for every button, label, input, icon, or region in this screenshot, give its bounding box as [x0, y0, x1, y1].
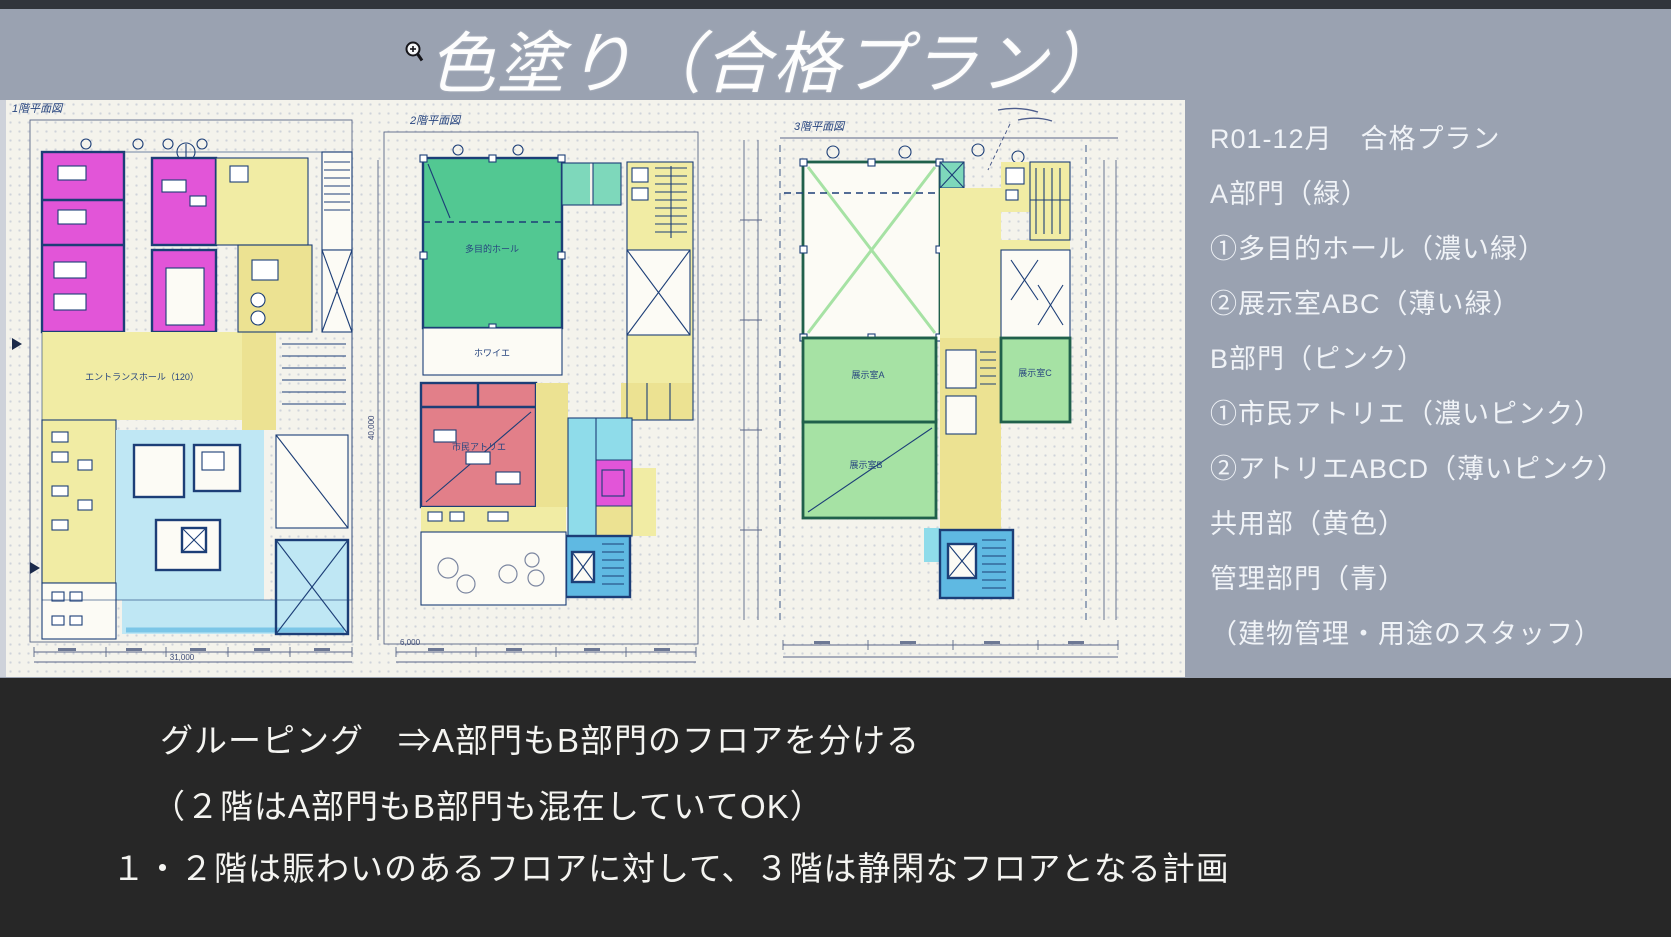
- legend-common: 共用部（黄色）: [1210, 509, 1660, 564]
- floor-plan-1f: 1階平面図 31,000: [6, 100, 366, 677]
- legend-dept-b-atelier: ①市民アトリエ（濃いピンク）: [1210, 399, 1660, 454]
- legend-dept-b-ateliers: ②アトリエABCD（薄いピンク）: [1210, 454, 1660, 509]
- plan2-atelier-red: 市民アトリエ: [421, 383, 536, 507]
- notes-band: グルーピング ⇒A部門もB部門のフロアを分ける （２階はA部門もB部門も混在して…: [0, 678, 1671, 937]
- plan3-room-b-label: 展示室B: [849, 459, 882, 470]
- legend: R01-12月 合格プラン A部門（緑） ①多目的ホール（濃い緑） ②展示室AB…: [1210, 124, 1660, 674]
- plan2-hall-dark-green: 多目的ホール: [420, 155, 621, 331]
- legend-dept-b: B部門（ピンク）: [1210, 344, 1660, 399]
- floor-plan-3f: 3階平面図: [718, 100, 1185, 677]
- floor-plans-image: 1階平面図 31,000: [6, 100, 1185, 677]
- plan1-atelier-rooms-pink: [42, 152, 216, 332]
- plan1-dim-total: 31,000: [170, 653, 195, 662]
- page-title: 色塗り（合格プラン）: [428, 10, 1118, 107]
- plan1-title: 1階平面図: [12, 102, 64, 115]
- plan2-hall-label: 多目的ホール: [465, 243, 519, 254]
- note-floor-plan: １・２階は賑わいのあるフロアに対して、３階は静閑なフロアとなる計画: [112, 842, 1230, 890]
- plan3-exhibition-rooms-green: 展示室A 展示室B 展示室C: [803, 338, 1070, 518]
- plan2-foyer-label: ホワイエ: [474, 348, 510, 358]
- legend-plan-name: R01-12月 合格プラン: [1210, 124, 1660, 179]
- zoom-cursor-icon: [404, 40, 426, 64]
- floor-plan-2f: 2階平面図 40,000 6,000: [366, 100, 716, 677]
- plan2-atelier-label: 市民アトリエ: [452, 441, 506, 452]
- plan2-dim-left: 40,000: [367, 415, 376, 440]
- note-grouping: グルーピング ⇒A部門もB部門のフロアを分ける: [160, 714, 920, 762]
- legend-dept-a-hall: ①多目的ホール（濃い緑）: [1210, 234, 1660, 289]
- legend-dept-a: A部門（緑）: [1210, 179, 1660, 234]
- legend-management: 管理部門（青）: [1210, 564, 1660, 619]
- legend-dept-a-exhibit: ②展示室ABC（薄い緑）: [1210, 289, 1660, 344]
- plan3-stairs-blue: [924, 528, 1013, 598]
- plan1-entrance-hall-label: エントランスホール（120）: [85, 372, 199, 382]
- plan3-room-c-label: 展示室C: [1018, 367, 1052, 378]
- plan2-lounge-room: [421, 532, 566, 605]
- slide-top-edge: [0, 0, 1671, 9]
- plan3-title: 3階平面図: [794, 120, 846, 133]
- plan2-foyer: ホワイエ: [423, 328, 562, 375]
- plan2-title: 2階平面図: [409, 114, 462, 127]
- legend-management-note: （建物管理・用途のスタッフ）: [1210, 619, 1660, 674]
- plan3-room-a-label: 展示室A: [851, 369, 884, 380]
- note-2f-mixed: （２階はA部門もB部門も混在していてOK）: [152, 780, 824, 828]
- plan2-dim-corner: 6,000: [400, 638, 421, 647]
